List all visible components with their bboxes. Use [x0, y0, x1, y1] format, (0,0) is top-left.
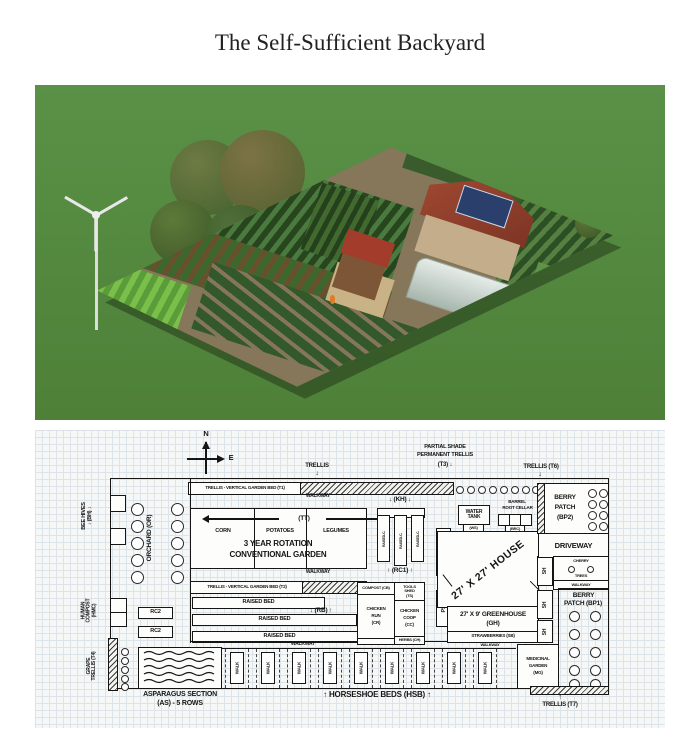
berry-bush: [590, 647, 601, 658]
page-title: The Self-Sufficient Backyard: [0, 30, 700, 56]
horseshoe-bay: WALK: [256, 649, 280, 688]
grape-vine: [121, 657, 129, 665]
asparagus-label-1: ASPARAGUS SECTION: [130, 691, 230, 699]
rc2-label: RC2: [139, 610, 172, 616]
walk-label: WALK: [483, 662, 488, 674]
t7-arrow: ↑: [550, 694, 570, 702]
cherry-tree: [568, 566, 575, 573]
bee-hive-box: [110, 495, 126, 512]
bp1-label-1: BERRY: [559, 592, 608, 599]
rc2-bed: RC2: [138, 607, 173, 619]
berry-bush: [569, 629, 580, 640]
barrel-divider: [520, 515, 521, 525]
rc1-label: ↑ (RC1) ↑: [370, 567, 430, 574]
house-outline: 27' X 27' HOUSE: [437, 531, 539, 608]
walk-path: WALK: [261, 652, 275, 684]
orchard-tree: [131, 503, 144, 516]
potatoes-label: POTATOES: [257, 529, 303, 535]
berry-bush: [599, 500, 608, 509]
rotation-arrow-left: [209, 518, 279, 520]
berry-bush: [569, 665, 580, 676]
walk-label: WALK: [297, 662, 302, 674]
medicinal-garden: MEDICINALGARDEN(MG): [517, 644, 559, 689]
rotation-arrow-right: [326, 518, 381, 520]
walk-path: WALK: [385, 652, 399, 684]
trellis-plant: [489, 486, 497, 494]
bp1-label-2: PATCH (BP1): [553, 600, 613, 607]
berry-patch-2: BERRYPATCH(BP2): [537, 483, 609, 534]
rotation-garden: (TT) CORN POTATOES LEGUMES 3 YEAR ROTATI…: [190, 508, 367, 569]
berry-bush: [599, 489, 608, 498]
compass-east-label: E: [225, 454, 237, 462]
trellis-plant: [467, 486, 475, 494]
t6-arrow: ↓: [530, 471, 550, 479]
horseshoe-bay: WALK: [287, 649, 311, 688]
raised-bed: RAISED BED: [192, 614, 357, 626]
walkway-label: WALKWAY: [278, 494, 358, 499]
berry-bush: [588, 489, 597, 498]
rotation-title-1: 3 YEAR ROTATION: [209, 540, 347, 549]
horseshoe-bay: WALK: [225, 649, 249, 688]
rc2-bed: RC2: [138, 626, 173, 638]
t3-label-1: PARTIAL SHADE: [410, 445, 480, 451]
asparagus-section: [138, 647, 222, 689]
horseshoe-bay: WALK: [473, 649, 497, 688]
human-compost-box: [110, 598, 127, 613]
greenhouse-outline: 27' X 9' GREENHOUSE (GH): [447, 606, 539, 632]
horseshoe-bay: WALK: [318, 649, 342, 688]
water-tank: WATERTANK: [458, 505, 490, 525]
grape-vine: [121, 683, 129, 691]
kh-label: ↓ (KH) ↓: [372, 496, 428, 503]
sh-label: SH: [542, 601, 548, 608]
walkway-label: WALKWAY: [554, 583, 608, 587]
compass-north-label: N: [199, 430, 213, 438]
walk-path: WALK: [292, 652, 306, 684]
herbs-label: HERBS (CH): [395, 638, 424, 642]
walk-label: WALK: [266, 662, 271, 674]
cherry-trees: CHERRY TREES: [553, 556, 609, 582]
walk-label: WALK: [235, 662, 240, 674]
greenhouse-label-2: (GH): [448, 620, 538, 627]
horseshoe-bay: WALK: [349, 649, 373, 688]
trellis-plant: [522, 486, 530, 494]
human-compost-box: [110, 612, 127, 627]
orchard-tree: [171, 571, 184, 584]
sh-label: SH: [542, 568, 548, 575]
t2-label: TRELLIS - VERTICAL GARDEN BED (T2): [192, 585, 302, 590]
berry-patch-1: BERRY PATCH (BP1): [558, 588, 609, 689]
grape-vine: [121, 675, 129, 683]
keyhole-finger: RAISED-C.: [411, 515, 424, 562]
ws-label: (WS): [464, 526, 483, 530]
berry-bush: [599, 522, 608, 531]
greenhouse-label-1: 27' X 9' GREENHOUSE: [448, 611, 538, 618]
human-compost-label: HUMANCOMPOST(HMC): [82, 583, 103, 639]
t6-trellis-hatch: [537, 483, 545, 534]
berry-bush: [590, 629, 601, 640]
herbs-bed: HERBS (CH): [394, 636, 425, 645]
orchard-tree: [171, 554, 184, 567]
orchard-tree: [131, 554, 144, 567]
barrel-divider: [509, 515, 510, 525]
orchard-tree: [131, 520, 144, 533]
trellis-plant: [456, 486, 464, 494]
chicken-run: CHICKENRUN(CR): [357, 594, 395, 639]
raised-c-label: RAISED-C.: [382, 530, 386, 546]
walk-label: WALK: [359, 662, 364, 674]
walkway-label: WALKWAY: [263, 642, 343, 647]
sh-box: SH: [537, 556, 553, 586]
bee-hives-label: BEE HIVES↓ (BH) ↓: [82, 486, 100, 546]
keyhole-finger: RAISED-C.: [377, 515, 390, 562]
berry-bush: [590, 665, 601, 676]
sh-box: SH: [537, 620, 553, 643]
rotation-title-2: CONVENTIONAL GARDEN: [201, 551, 355, 560]
berry-bush: [569, 647, 580, 658]
bee-hive-box: [110, 528, 126, 545]
homestead-photo: [35, 85, 665, 420]
compass-north-arrow: [202, 437, 210, 449]
wind-turbine-blade: [95, 215, 98, 251]
berry-bush: [588, 522, 597, 531]
walk-label: WALK: [421, 662, 426, 674]
driveway: DRIVEWAY: [538, 533, 609, 558]
grape-trellis-hatch: [108, 638, 118, 691]
walkway-label: WALKWAY: [460, 643, 520, 647]
gardener-figure: [330, 295, 335, 304]
walkway-label: WALKWAY: [278, 570, 358, 575]
wind-turbine-hub: [92, 211, 100, 219]
compost-bin-label: COMPOST (CB): [358, 586, 394, 590]
orchard-label: ORCHARD (OR): [146, 496, 158, 580]
walk-path: WALK: [478, 652, 492, 684]
raised-bed-label: RAISED BED: [193, 617, 356, 623]
grape-vine: [121, 666, 129, 674]
orchard-tree: [131, 537, 144, 550]
asparagus-label-2: (AS) - 5 ROWS: [130, 700, 230, 708]
chicken-run-label: CHICKENRUN(CR): [358, 606, 394, 626]
chicken-coop: CHICKENCOOP(CC): [394, 600, 425, 637]
orchard-tree: [171, 503, 184, 516]
orchard-tree: [171, 537, 184, 550]
strawberries-label: STRAWBERRIES (SB): [448, 634, 538, 639]
trellis-plant: [478, 486, 486, 494]
walk-label: WALK: [452, 662, 457, 674]
chicken-coop-label: CHICKENCOOP(CC): [395, 608, 424, 628]
walk-path: WALK: [323, 652, 337, 684]
t3-label-2: PERMANENT TRELLIS: [403, 453, 487, 459]
compass-ew-line: [187, 458, 219, 460]
trees-label: TREES: [554, 574, 608, 578]
t1-label: TRELLIS - VERTICAL GARDEN BED (T1): [190, 486, 300, 491]
walk-label: WALK: [390, 662, 395, 674]
horseshoe-bay: WALK: [380, 649, 404, 688]
cherry-tree: [587, 566, 594, 573]
keyhole-finger: RAISED-C.: [394, 515, 407, 566]
rc2-label: RC2: [139, 629, 172, 635]
walk-path: WALK: [354, 652, 368, 684]
horseshoe-bay: WALK: [442, 649, 466, 688]
garden-plan: N E TRELLIS ↓ PARTIAL SHADE PERMANENT TR…: [35, 430, 665, 728]
garden-plot: [75, 120, 630, 395]
asparagus-rows: [139, 648, 219, 686]
t2-trellis-bed: TRELLIS - VERTICAL GARDEN BED (T2): [190, 581, 304, 594]
page: The Self-Sufficient Backyard: [0, 0, 700, 730]
horseshoe-beds-label: ↑ HORSESHOE BEDS (HSB) ↑: [297, 691, 457, 700]
walk-label: WALK: [328, 662, 333, 674]
trellis-plant: [500, 486, 508, 494]
compass: N E: [181, 434, 233, 478]
tt-label: (TT): [286, 515, 322, 522]
berry-bush: [599, 511, 608, 520]
orchard-tree: [131, 571, 144, 584]
walk-path: WALK: [230, 652, 244, 684]
berry-bush: [590, 611, 601, 622]
cherry-label: CHERRY: [554, 559, 608, 563]
t7-label: TRELLIS (T7): [530, 702, 590, 708]
raised-c-label: RAISED-C.: [416, 530, 420, 546]
raised-bed-label: RAISED BED: [193, 634, 366, 640]
raised-bed-label: RAISED BED: [193, 600, 324, 606]
walk-path: WALK: [447, 652, 461, 684]
medicinal-label: MEDICINALGARDEN(MG): [518, 655, 558, 677]
corn-label: CORN: [199, 529, 247, 535]
walk-path: WALK: [416, 652, 430, 684]
sh-box: SH: [537, 590, 553, 619]
sh-label: SH: [542, 628, 548, 635]
wind-turbine-blade: [95, 196, 127, 216]
berry-bush: [569, 611, 580, 622]
berry-bush: [588, 500, 597, 509]
legumes-label: LEGUMES: [311, 529, 361, 535]
tree: [575, 210, 603, 238]
water-tank-label: WATERTANK: [459, 510, 489, 521]
grape-vine: [121, 648, 129, 656]
tools-shed-label: TOOLSSHED(TS): [395, 585, 424, 598]
berry-bush: [588, 511, 597, 520]
trellis-top-label: TRELLIS: [287, 463, 347, 469]
t6-label: TRELLIS (T6): [513, 464, 569, 470]
t3-label-3: (T3) ↓: [425, 462, 465, 468]
orchard-tree: [171, 520, 184, 533]
trellis-plant: [511, 486, 519, 494]
trellis-top-arrow: ↓: [307, 470, 327, 478]
grape-trellis-label: GRAPETRELLIS (T4): [87, 638, 103, 694]
raised-c-label: RAISED-C.: [399, 532, 403, 548]
horseshoe-bay: WALK: [411, 649, 435, 688]
driveway-label: DRIVEWAY: [539, 542, 608, 550]
rb-label: ↓ (RB) ↑: [297, 607, 345, 614]
tools-shed: TOOLSSHED(TS): [394, 582, 425, 601]
house-label: 27' X 27' HOUSE: [449, 537, 526, 601]
bp2-label: BERRYPATCH(BP2): [546, 493, 584, 523]
